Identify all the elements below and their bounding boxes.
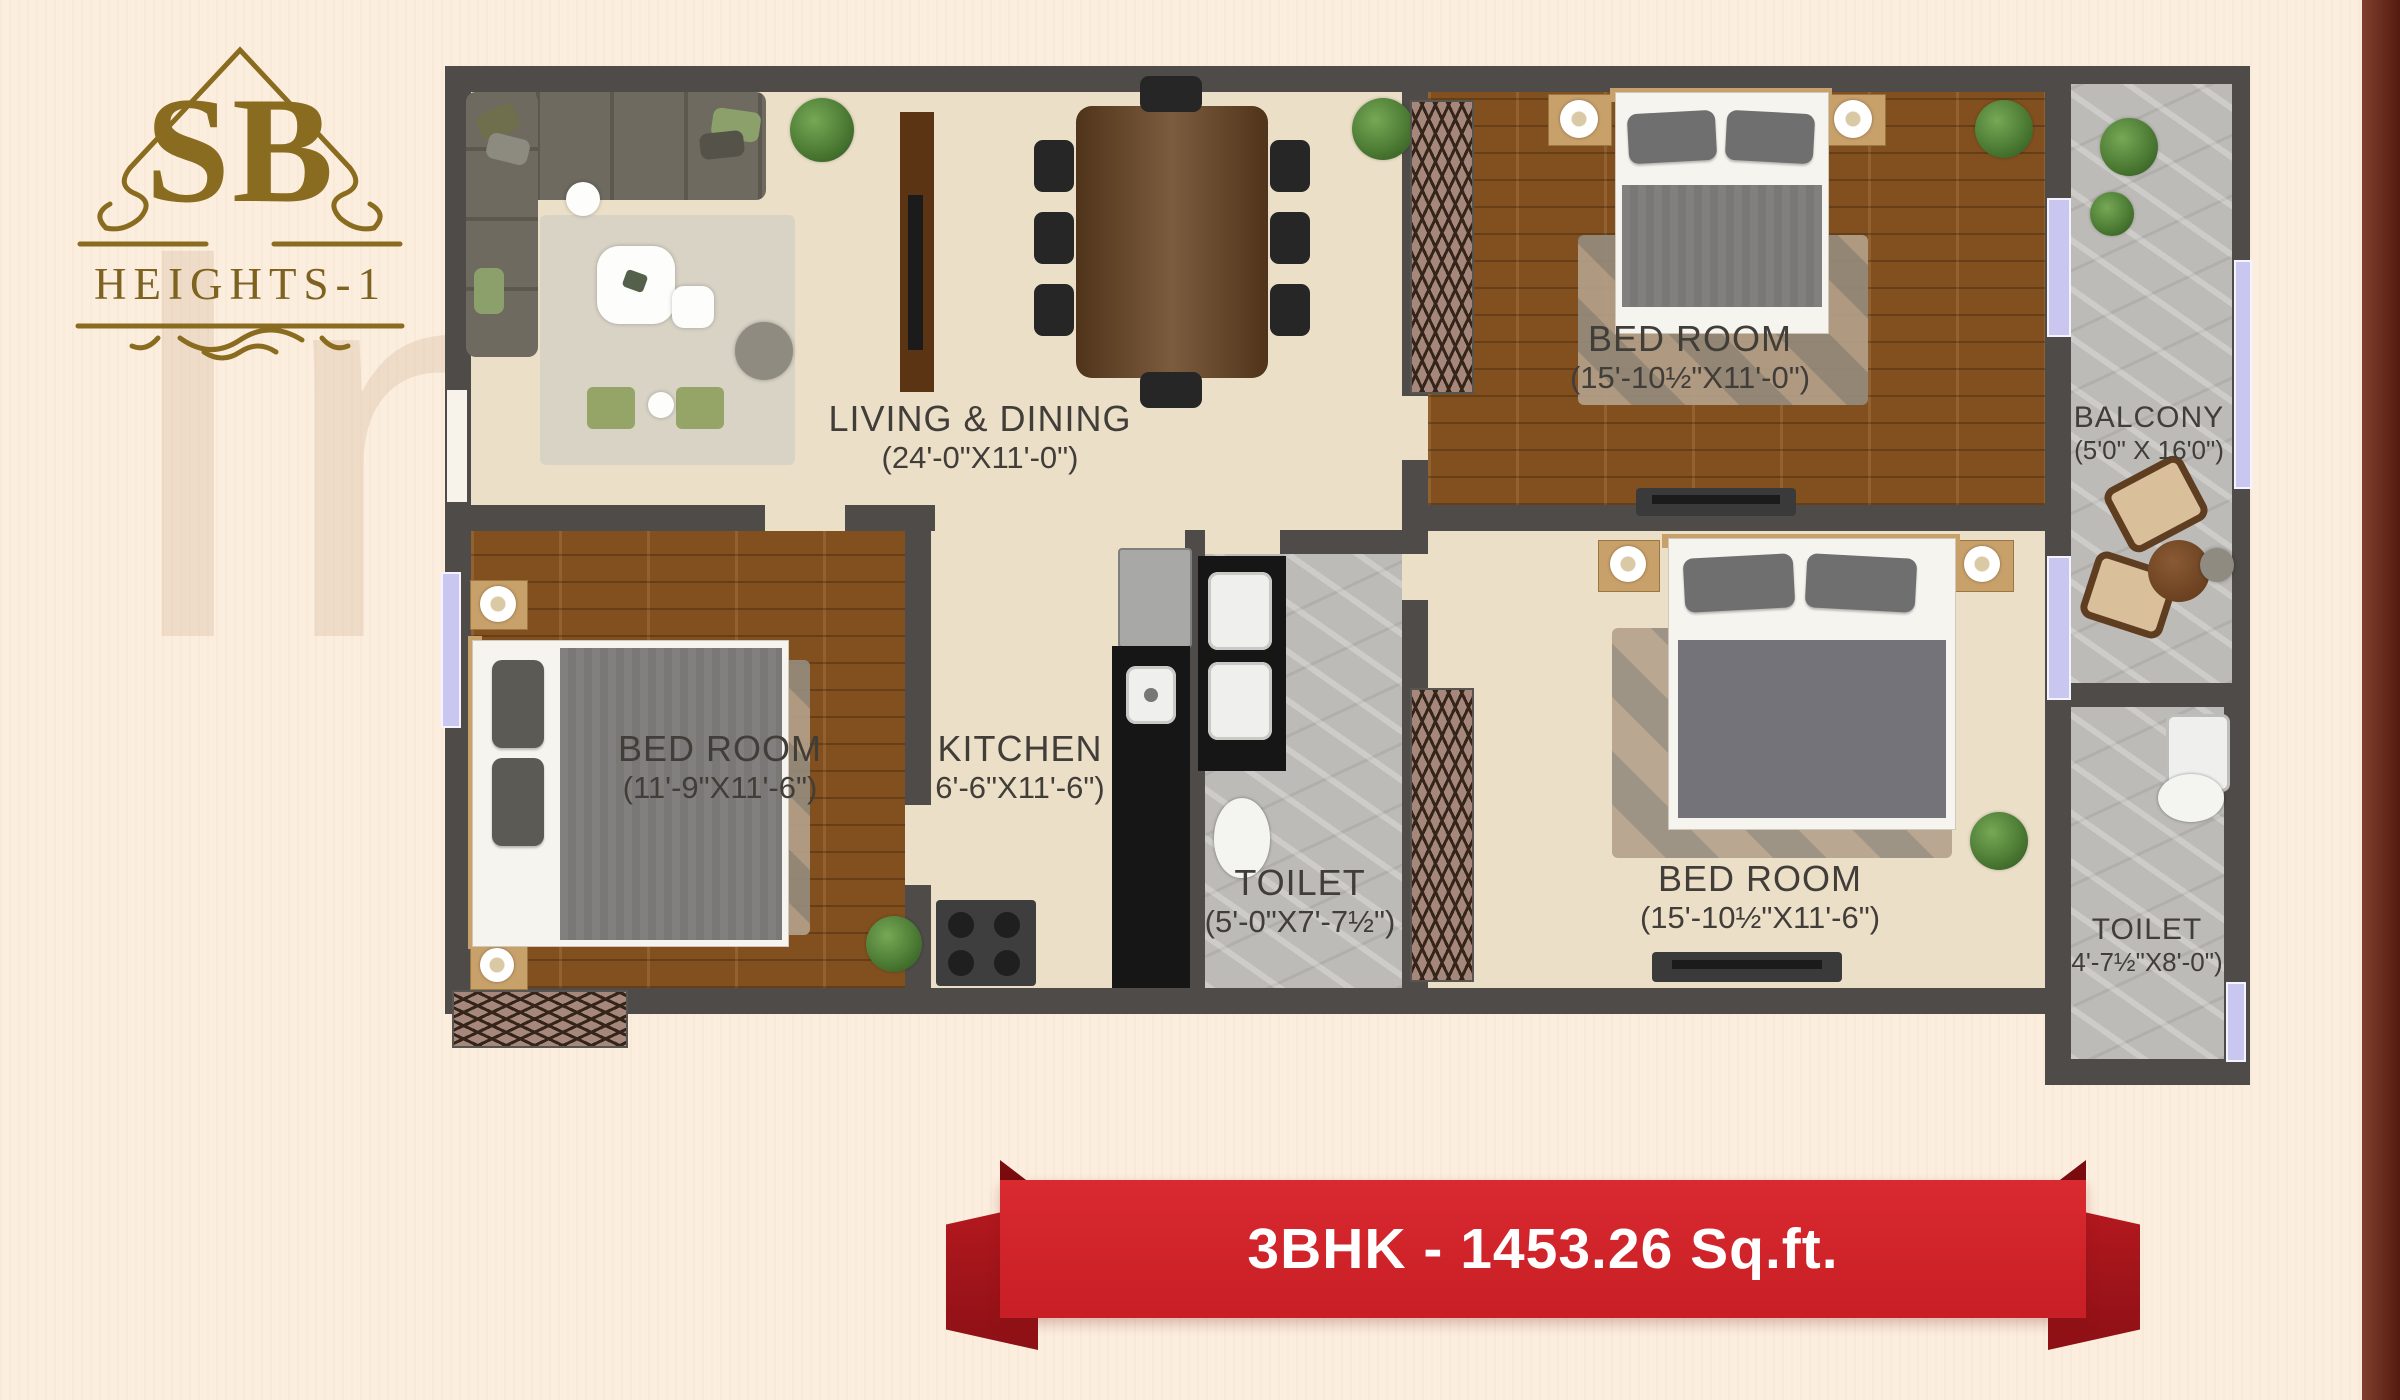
door-opening [447, 390, 467, 502]
tv-screen [908, 195, 923, 350]
area-banner: 3BHK - 1453.26 Sq.ft. [1000, 1180, 2086, 1318]
logo-monogram: SB [58, 74, 423, 226]
wall [2069, 683, 2250, 707]
wash-basin [1208, 572, 1272, 650]
wardrobe [1410, 100, 1474, 394]
pillow [1683, 553, 1796, 613]
refrigerator [1118, 548, 1192, 648]
wall [445, 988, 2069, 1014]
lamp [1964, 546, 2000, 582]
dining-chair [1270, 140, 1310, 192]
pillow [1805, 553, 1918, 613]
plant [1975, 100, 2033, 158]
side-table [648, 392, 674, 418]
wardrobe [452, 990, 628, 1048]
pillow [1627, 110, 1717, 165]
pillow [1725, 110, 1815, 165]
room-label-bedroom-left: BED ROOM(11'-9"X11'-6") [520, 728, 920, 807]
side-table [566, 182, 600, 216]
wash-basin [1208, 662, 1272, 740]
plant [866, 916, 922, 972]
floor-cushion [676, 387, 724, 429]
room-label-toilet-middle: TOILET(5'-0"X7'-7½") [1198, 862, 1402, 941]
floor-cushion [587, 387, 635, 429]
brand-logo: SB HEIGHTS-1 [58, 26, 423, 366]
wall [2071, 66, 2250, 84]
lamp [1610, 546, 1646, 582]
room-label-toilet-right: TOILET4'-7½"X8'-0") [2058, 912, 2236, 978]
wall [1280, 530, 1428, 554]
wall [1402, 460, 1428, 531]
plant [2100, 118, 2158, 176]
dining-chair [1270, 212, 1310, 264]
plant [1970, 812, 2028, 870]
room-label-living-dining: LIVING & DINING(24'-0"X11'-0") [780, 398, 1180, 477]
room-label-bedroom-bottom-right: BED ROOM(15'-10½"X11'-6") [1560, 858, 1960, 937]
window [2047, 556, 2071, 700]
pouf [735, 322, 793, 380]
blanket [1678, 640, 1946, 818]
wardrobe [1410, 688, 1474, 982]
stove [936, 900, 1036, 986]
dining-chair [1140, 76, 1202, 112]
plant [790, 98, 854, 162]
plant [1352, 98, 1414, 160]
dining-chair [1034, 284, 1074, 336]
faucet [1144, 688, 1158, 702]
dining-chair [1034, 140, 1074, 192]
coffee-table [672, 286, 714, 328]
toilet-wc [2158, 774, 2224, 822]
lamp [1834, 100, 1872, 138]
window [2226, 982, 2246, 1062]
frame-edge-strip [2362, 0, 2400, 1400]
lamp [1560, 100, 1598, 138]
dining-chair [1270, 284, 1310, 336]
dining-chair [1034, 212, 1074, 264]
dining-table [1076, 106, 1268, 378]
sofa-pillow [699, 130, 745, 160]
room-label-bedroom-top-right: BED ROOM(15'-10½"X11'-0") [1490, 318, 1890, 397]
blanket [1622, 185, 1822, 307]
room-label-balcony: BALCONY(5'0" X 16'0") [2056, 400, 2242, 466]
window [2047, 198, 2071, 337]
tv-screen [1652, 495, 1780, 504]
area-banner-text: 3BHK - 1453.26 Sq.ft. [1247, 1216, 1838, 1282]
room-label-kitchen: KITCHEN6'-6"X11'-6") [870, 728, 1170, 807]
balcony-stool [2200, 548, 2234, 582]
tv-screen [1672, 960, 1822, 969]
wall [445, 505, 765, 531]
window [441, 572, 461, 728]
plant [2090, 192, 2134, 236]
logo-project-name: HEIGHTS-1 [58, 258, 423, 310]
lamp [480, 586, 516, 622]
sofa-pillow [474, 268, 504, 314]
lamp [480, 948, 514, 982]
wall [2069, 1059, 2250, 1085]
